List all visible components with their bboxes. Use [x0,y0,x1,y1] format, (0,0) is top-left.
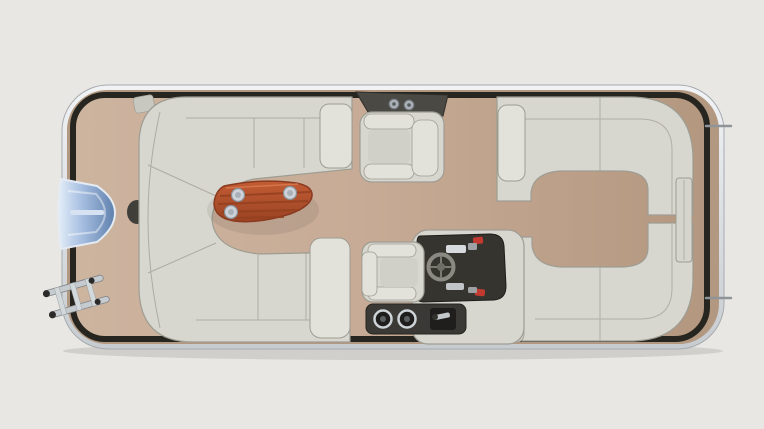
cupholder [284,187,297,200]
helm-speaker-core [404,316,410,322]
cupholder [225,206,238,219]
captain-chair-cushion [380,258,418,287]
bow-lounge-armrest-top [320,104,352,168]
cupholder-core [287,190,293,196]
armchair-cushion [368,130,410,163]
boat-floorplan-figure [0,0,764,429]
bow-gate-step [70,210,104,215]
helm-station [362,230,524,344]
bracket-hinge-pin [407,103,411,107]
bow-armchair [360,112,444,182]
armchair-backrest [412,120,438,176]
dash-gauge [446,245,466,253]
bracket-hinge-pin [392,102,396,106]
armchair-arm-bottom [364,164,414,179]
chaise-armrest [498,105,525,181]
cupholder [232,189,245,202]
throttle-knob [432,314,438,320]
cupholder-core [235,192,241,198]
dash-display [468,243,477,250]
dash-gauge [446,283,464,290]
steering-wheel-hub [437,263,445,271]
bow-lounge-armrest-bottom [310,238,350,338]
dash-display [468,287,477,293]
armchair-arm-top [364,114,414,129]
cupholder-core [228,209,234,215]
captain-chair-backrest [362,252,377,296]
stern-gate [676,178,692,262]
helm-speaker-core [380,316,386,322]
floorplan-svg [0,0,764,429]
